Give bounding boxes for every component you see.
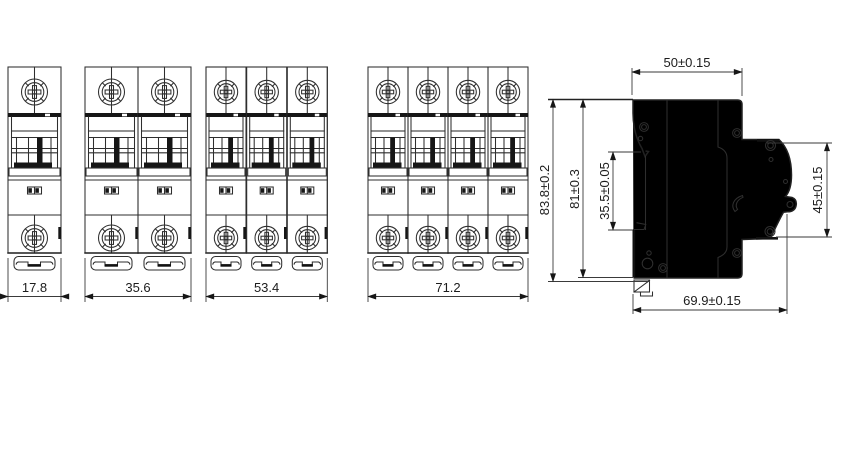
front-view-3-pole: 53.4 xyxy=(206,67,327,302)
overall-height-dimension-label: 83.8±0.2 xyxy=(537,165,552,216)
din-slot-dimension-label: 35.5±0.05 xyxy=(597,162,612,220)
side-view: 50±0.15 83.8±0.2 81±0.3 35.5±0.05 45±0.1… xyxy=(537,55,832,314)
mcb-dimension-drawing: 17.8 35.6 53.4 71.2 xyxy=(0,0,842,451)
technical-drawing-canvas: 17.8 35.6 53.4 71.2 xyxy=(0,0,842,451)
body-height-dimension-label: 81±0.3 xyxy=(567,169,582,209)
width-dimension-label: 17.8 xyxy=(22,280,47,295)
front-view-2-pole: 35.6 xyxy=(85,67,191,302)
top-width-dimension-label: 50±0.15 xyxy=(664,55,711,70)
width-dimension-label: 35.6 xyxy=(125,280,150,295)
front-view-4-pole: 71.2 xyxy=(368,67,528,302)
width-dimension-label: 53.4 xyxy=(254,280,279,295)
front-face-height-dimension-label: 45±0.15 xyxy=(810,167,825,214)
overall-depth-dimension-label: 69.9±0.15 xyxy=(683,293,741,308)
width-dimension-label: 71.2 xyxy=(435,280,460,295)
front-view-1-pole: 17.8 xyxy=(0,67,69,302)
